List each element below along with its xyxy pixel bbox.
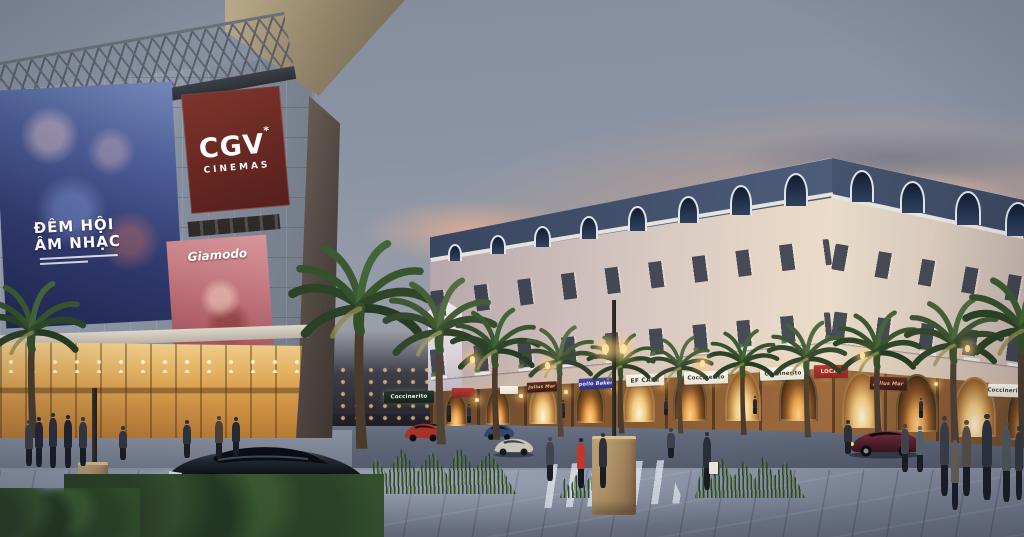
- dormer-window: [534, 226, 551, 247]
- pedestrian: [63, 415, 73, 468]
- dormer-window: [490, 235, 506, 254]
- dormer-window: [580, 216, 598, 239]
- lamp-post: [612, 300, 616, 440]
- pedestrian: [78, 417, 88, 466]
- street-lamp-icon: [700, 360, 705, 367]
- shopping-bag: [709, 462, 718, 474]
- pedestrian: [843, 420, 853, 454]
- cgv-cinemas-sign: CGV* CINEMAS: [181, 86, 290, 214]
- pedestrian: [34, 417, 44, 467]
- pedestrian: [545, 437, 555, 481]
- pedestrian: [24, 420, 34, 466]
- palm-tree: [0, 278, 92, 438]
- dormer-window: [730, 185, 752, 215]
- pedestrian: [960, 420, 973, 496]
- pedestrian: [915, 426, 925, 472]
- dormer-window: [955, 191, 981, 225]
- dormer-window: [850, 170, 874, 202]
- street-lamp-icon: [860, 352, 865, 359]
- cgv-logo: CGV*: [197, 124, 272, 162]
- promo-brand: Giamodo: [167, 245, 268, 266]
- maroon-sedan: [846, 424, 924, 460]
- pedestrian: [1013, 426, 1024, 500]
- pedestrian-with-bag: [702, 432, 712, 490]
- street-scene: ĐÊM HỘI ÂM NHẠC CGV* CINEMAS Giamodo: [0, 0, 1024, 537]
- music-event-poster-text: ĐÊM HỘI ÂM NHẠC: [33, 216, 121, 254]
- pedestrian-red-coat: [576, 438, 586, 488]
- dormer-window: [678, 196, 699, 223]
- street-lamp-icon: [965, 345, 970, 352]
- pedestrian: [231, 417, 241, 457]
- dormer-window: [448, 244, 462, 261]
- lamp-post: [92, 388, 97, 468]
- pedestrian: [1000, 422, 1013, 502]
- dormer-window: [784, 173, 808, 206]
- pedestrian: [949, 440, 961, 510]
- silver-car: [492, 436, 536, 458]
- street-lamp-icon: [470, 356, 475, 363]
- pedestrian: [666, 428, 676, 458]
- cgv-star-icon: *: [263, 123, 271, 137]
- dormer-window: [628, 206, 647, 231]
- pedestrian: [900, 424, 910, 472]
- pedestrian: [182, 420, 192, 458]
- pedestrian: [598, 433, 608, 488]
- pedestrian: [214, 416, 224, 458]
- hedge: [0, 488, 140, 537]
- pedestrian: [980, 414, 994, 500]
- pedestrian: [118, 426, 128, 460]
- lamp-post-light: [620, 344, 627, 354]
- dormer-window: [900, 181, 925, 213]
- street-lamp-icon: [545, 362, 550, 369]
- lamp-post-light: [602, 344, 609, 354]
- pedestrian: [48, 413, 58, 468]
